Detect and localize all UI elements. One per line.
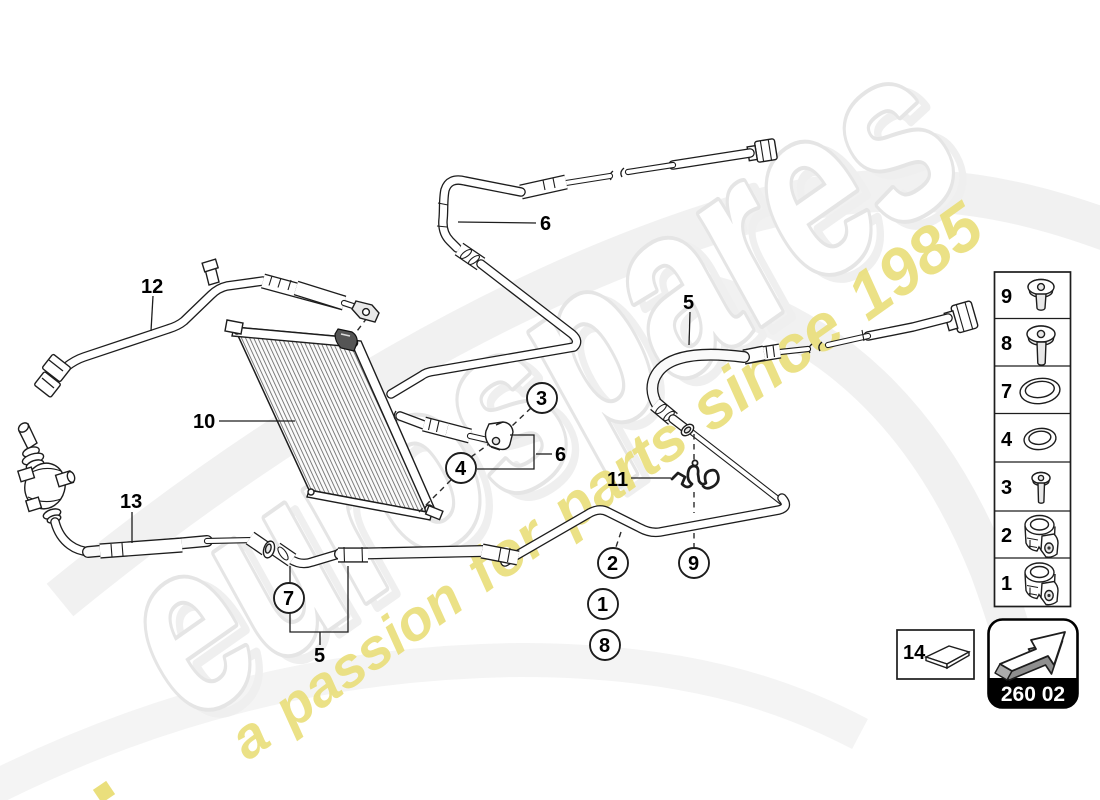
svg-text:2: 2 <box>607 553 618 575</box>
svg-text:13: 13 <box>120 491 142 513</box>
svg-text:8: 8 <box>1001 333 1012 355</box>
svg-text:5: 5 <box>314 645 325 667</box>
svg-text:10: 10 <box>193 411 215 433</box>
svg-text:7: 7 <box>283 588 294 610</box>
svg-text:4: 4 <box>455 458 467 480</box>
svg-text:3: 3 <box>1001 477 1012 499</box>
svg-text:6: 6 <box>540 213 551 235</box>
svg-text:3: 3 <box>536 388 547 410</box>
svg-text:11: 11 <box>607 469 628 491</box>
svg-text:6: 6 <box>555 444 566 466</box>
svg-text:9: 9 <box>1001 286 1012 308</box>
svg-text:8: 8 <box>599 635 610 657</box>
svg-text:9: 9 <box>688 553 699 575</box>
svg-text:2: 2 <box>1001 525 1012 547</box>
svg-text:14: 14 <box>903 642 926 664</box>
svg-text:1: 1 <box>1001 573 1012 595</box>
svg-text:12: 12 <box>141 276 163 298</box>
svg-text:5: 5 <box>683 292 694 314</box>
svg-text:260 02: 260 02 <box>1001 683 1065 706</box>
svg-text:1: 1 <box>597 594 608 616</box>
svg-text:7: 7 <box>1001 381 1012 403</box>
svg-text:4: 4 <box>1001 429 1013 451</box>
